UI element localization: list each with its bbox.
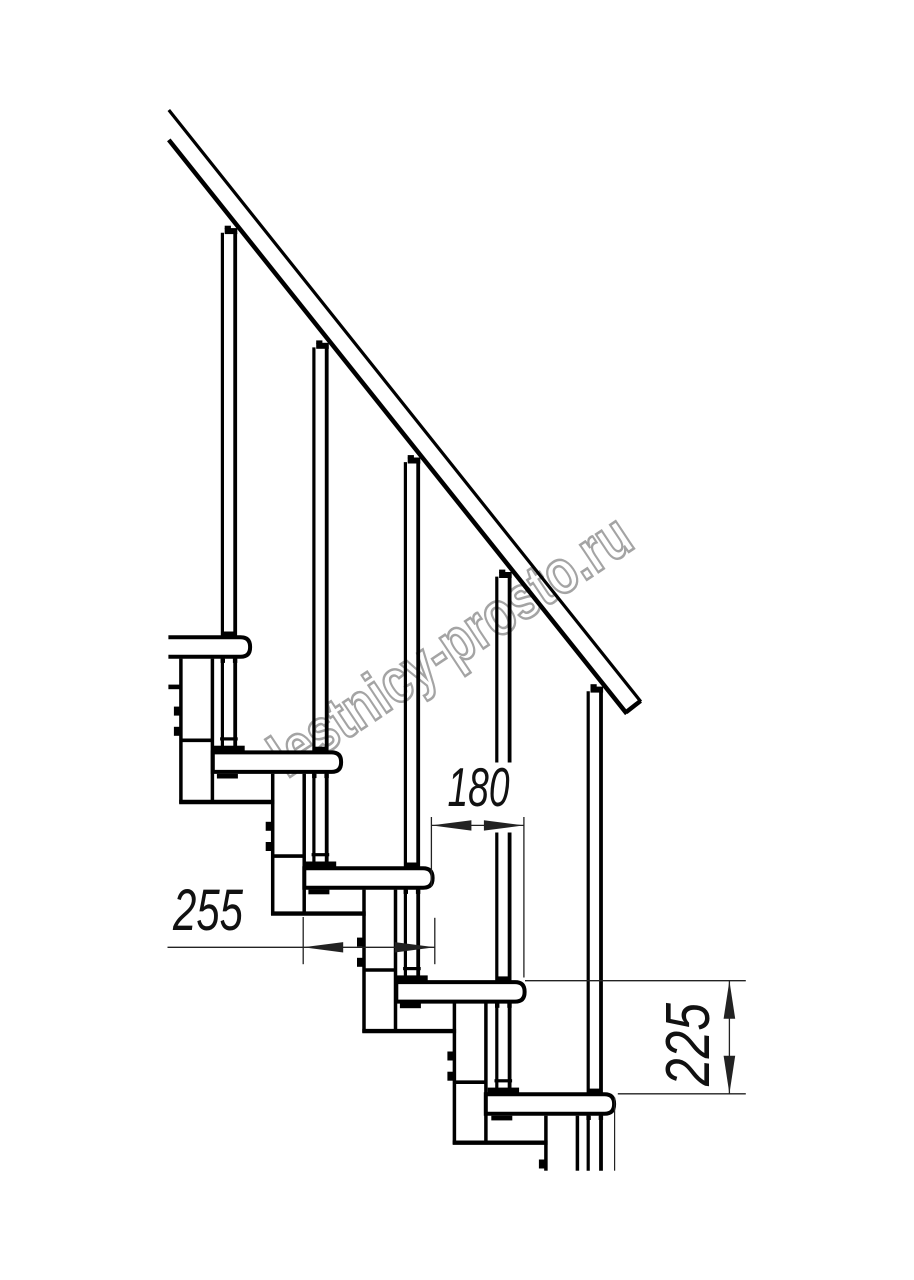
svg-text:225: 225 <box>654 1003 723 1087</box>
svg-text:255: 255 <box>172 878 243 943</box>
svg-text:180: 180 <box>448 757 510 818</box>
